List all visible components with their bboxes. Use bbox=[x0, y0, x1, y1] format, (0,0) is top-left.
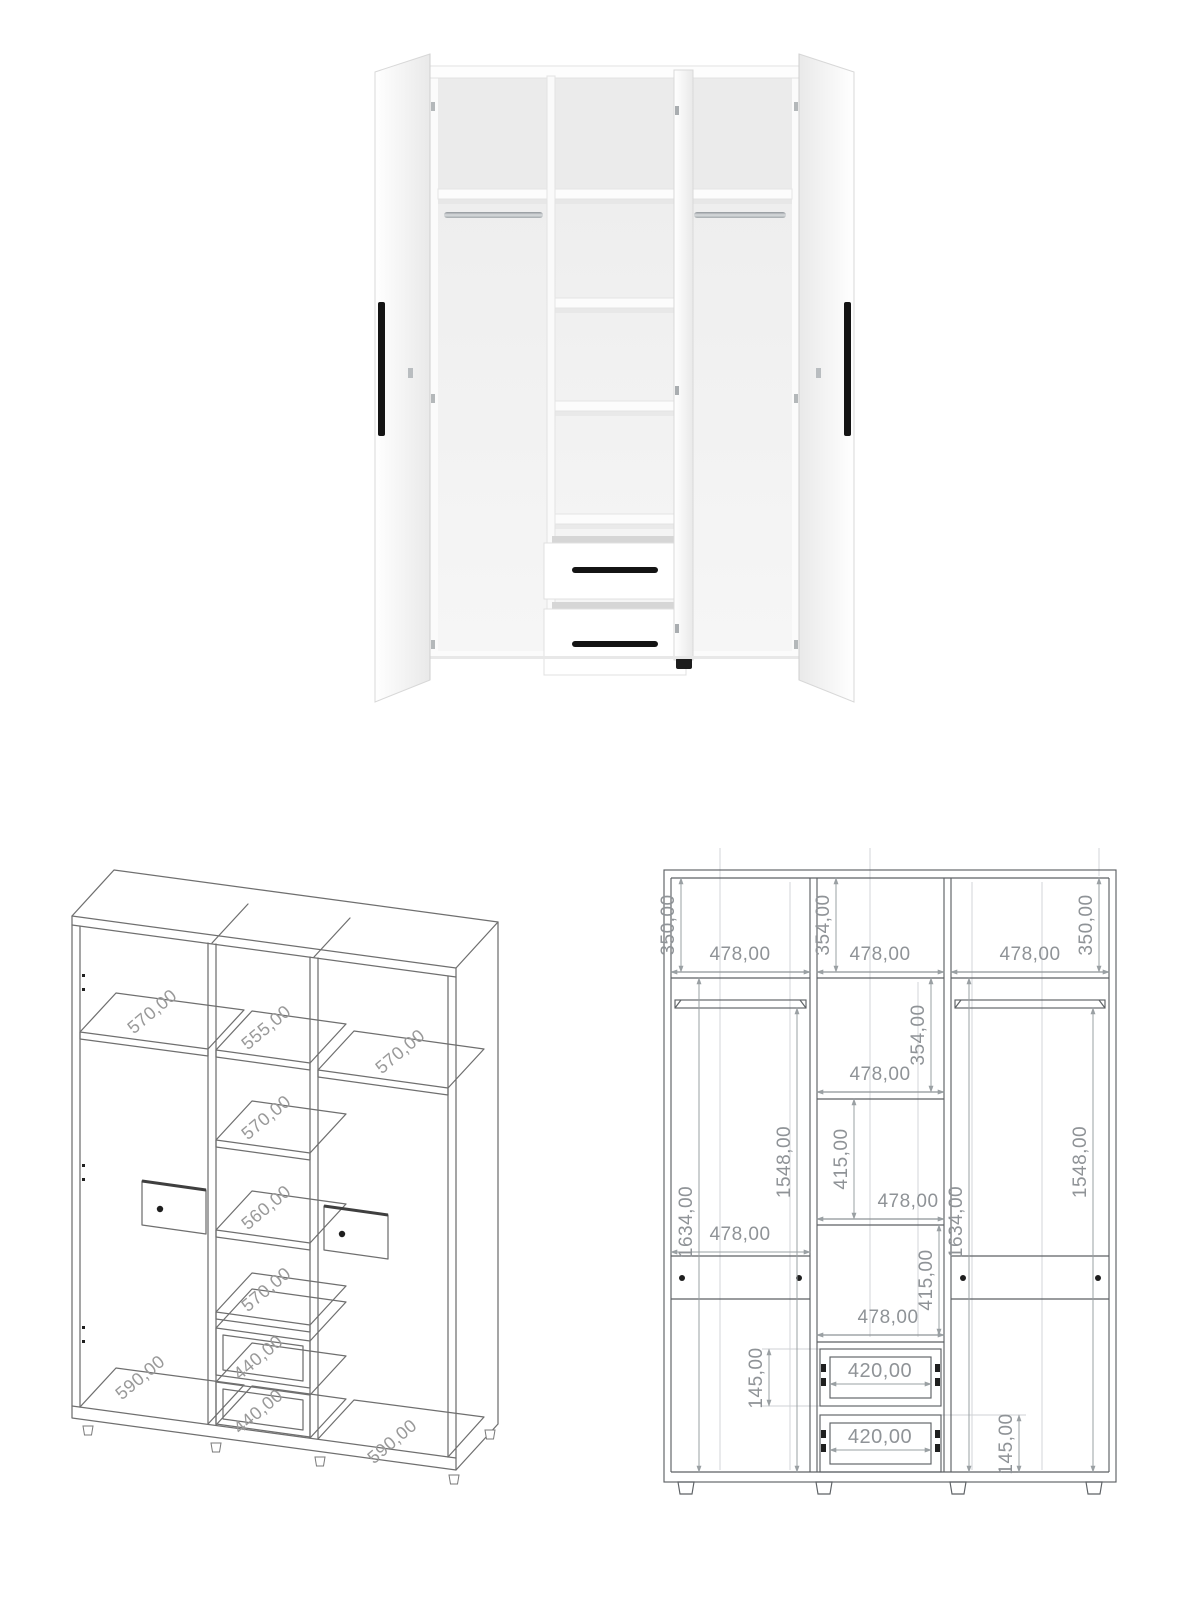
dim-right-col-height-a: 1634,00 bbox=[946, 1186, 967, 1258]
hinge-icon bbox=[675, 106, 679, 115]
iso-dim-center-shelf-1: 555,00 bbox=[237, 1001, 294, 1054]
iso-dim-left-shelf: 570,00 bbox=[123, 985, 180, 1038]
elevation-drawing: 350,00 478,00 354,00 478,00 478,00 350,0… bbox=[650, 832, 1130, 1498]
dim-row2-width: 478,00 bbox=[849, 1064, 910, 1085]
dim-top-center-width: 478,00 bbox=[849, 944, 910, 965]
iso-dim-base-left: 590,00 bbox=[111, 1351, 168, 1404]
dim-drawer2-height: 145,00 bbox=[996, 1413, 1017, 1474]
wardrobe-render bbox=[372, 46, 857, 708]
top-shelves bbox=[438, 189, 792, 204]
elevation-fitting-dots bbox=[679, 1275, 1101, 1281]
lock-icon bbox=[408, 368, 413, 378]
dim-top-left-height: 350,00 bbox=[658, 894, 679, 955]
hinge-icon bbox=[675, 624, 679, 633]
dim-drawer1-width: 420,00 bbox=[848, 1360, 912, 1382]
dim-left-lower-width: 478,00 bbox=[709, 1224, 770, 1245]
dim-row2-height: 354,00 bbox=[908, 1004, 929, 1065]
dim-row3-height: 415,00 bbox=[831, 1128, 852, 1189]
elevation-dimension-labels: 350,00 478,00 354,00 478,00 478,00 350,0… bbox=[658, 894, 1097, 1474]
base-shadow bbox=[430, 656, 800, 659]
drawer-1-handle[interactable] bbox=[572, 567, 658, 573]
elevation-feet bbox=[678, 1482, 1102, 1494]
dim-top-right-height: 350,00 bbox=[1076, 894, 1097, 955]
right-door-handle[interactable] bbox=[844, 302, 851, 436]
elevation-rails bbox=[675, 1000, 1105, 1008]
dim-top-left-width: 478,00 bbox=[709, 944, 770, 965]
dim-left-col-height-b: 1548,00 bbox=[774, 1126, 795, 1198]
drawer-2-handle[interactable] bbox=[572, 641, 658, 647]
product-sheet: 570,00 555,00 570,00 570,00 560,00 570,0… bbox=[0, 0, 1179, 1600]
dim-left-col-height-a: 1634,00 bbox=[676, 1186, 697, 1258]
dim-row4-width: 478,00 bbox=[857, 1307, 918, 1328]
top-panel bbox=[430, 66, 800, 78]
elevation-drawing-view: 350,00 478,00 354,00 478,00 478,00 350,0… bbox=[650, 832, 1130, 1498]
iso-dim-center-shelf-3: 560,00 bbox=[237, 1181, 294, 1234]
dim-row4-height: 415,00 bbox=[916, 1249, 937, 1310]
wardrobe-render-view bbox=[372, 46, 857, 708]
drawers bbox=[544, 536, 686, 675]
dim-right-col-height-b: 1548,00 bbox=[1070, 1126, 1091, 1198]
dim-row3-width: 478,00 bbox=[877, 1191, 938, 1212]
iso-dim-base-right: 590,00 bbox=[363, 1415, 420, 1468]
isometric-drawing: 570,00 555,00 570,00 570,00 560,00 570,0… bbox=[58, 826, 506, 1498]
hanging-rail-left bbox=[444, 212, 543, 218]
lock-icon bbox=[816, 368, 821, 378]
isometric-drawing-view: 570,00 555,00 570,00 570,00 560,00 570,0… bbox=[58, 826, 506, 1498]
iso-dim-center-shelf-4: 570,00 bbox=[237, 1263, 294, 1316]
dim-drawer1-height: 145,00 bbox=[746, 1347, 767, 1408]
hinge-icon bbox=[675, 386, 679, 395]
left-door[interactable] bbox=[375, 54, 430, 702]
iso-dim-center-shelf-2: 570,00 bbox=[237, 1091, 294, 1144]
right-door[interactable] bbox=[799, 54, 854, 702]
dim-drawer2-width: 420,00 bbox=[848, 1426, 912, 1448]
dim-top-center-height: 354,00 bbox=[813, 894, 834, 955]
dim-top-right-width: 478,00 bbox=[999, 944, 1060, 965]
dimension-lines bbox=[671, 878, 1109, 1472]
hanging-rail-right bbox=[694, 212, 786, 218]
left-door-handle[interactable] bbox=[378, 302, 385, 436]
iso-dim-right-shelf: 570,00 bbox=[371, 1025, 428, 1078]
middle-door-ajar[interactable] bbox=[674, 70, 693, 660]
